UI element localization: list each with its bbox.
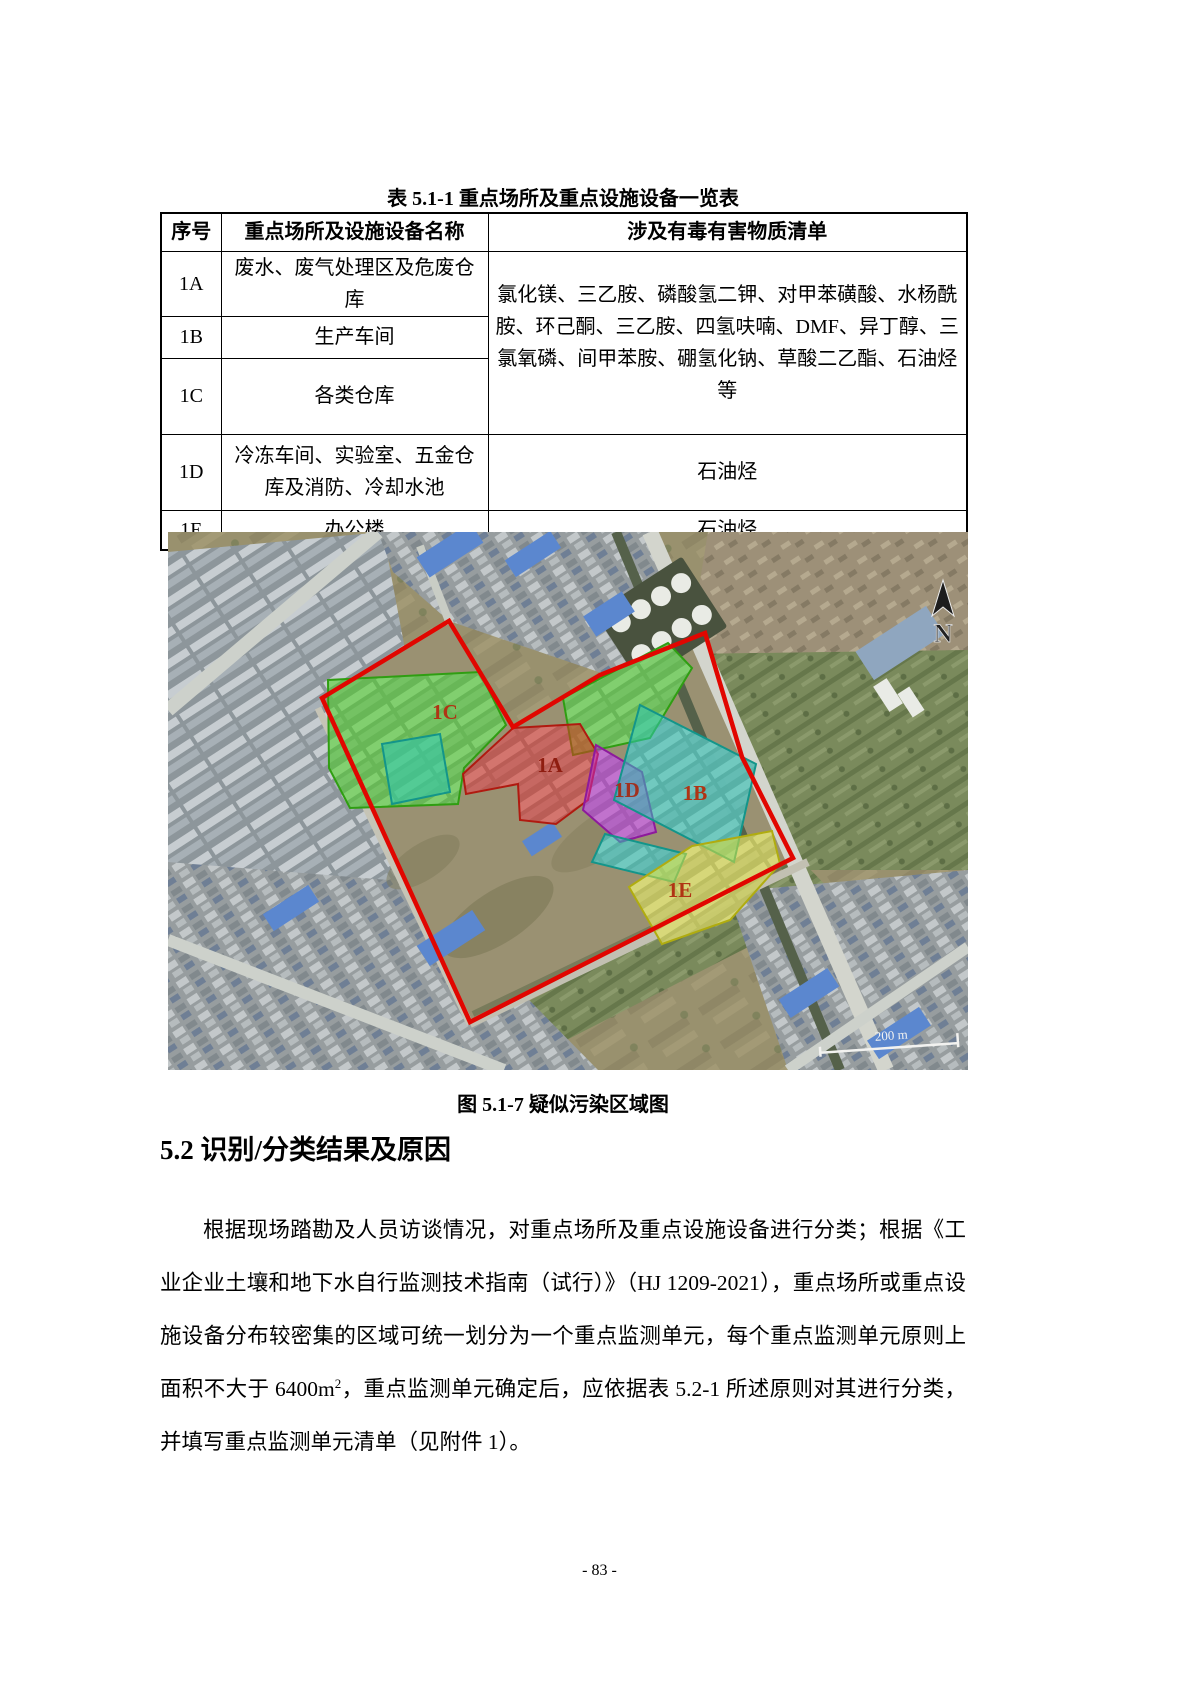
table-header-row: 序号 重点场所及设施设备名称 涉及有毒有害物质清单 <box>161 213 967 251</box>
header-substances: 涉及有毒有害物质清单 <box>488 213 967 251</box>
header-seq: 序号 <box>161 213 221 251</box>
table-row: 1D 冷冻车间、实验室、五金仓库及消防、冷却水池 石油烃 <box>161 434 967 510</box>
cell-name-1d: 冷冻车间、实验室、五金仓库及消防、冷却水池 <box>221 434 488 510</box>
cell-substances-merged: 氯化镁、三乙胺、磷酸氢二钾、对甲苯磺酸、水杨酰胺、环己酮、三乙胺、四氢呋喃、DM… <box>488 251 967 434</box>
site-map-svg: 1C 1A 1D 1B 1E N 200 m <box>168 532 968 1070</box>
zone-label-1a: 1A <box>537 753 564 777</box>
table-title: 表 5.1-1 重点场所及重点设施设备一览表 <box>160 182 966 211</box>
section-heading: 5.2 识别/分类结果及原因 <box>160 1128 966 1167</box>
cell-id-1d: 1D <box>161 434 221 510</box>
zone-1b-small-region <box>382 734 450 804</box>
figure-caption: 图 5.1-7 疑似污染区域图 <box>160 1088 966 1117</box>
north-label: N <box>934 619 953 648</box>
satellite-map-figure: 1C 1A 1D 1B 1E N 200 m <box>168 532 968 1070</box>
cell-name-1a: 废水、废气处理区及危废仓库 <box>221 251 488 316</box>
body-paragraph: 根据现场踏勘及人员访谈情况，对重点场所及重点设施设备进行分类；根据《工业企业土壤… <box>160 1204 966 1469</box>
paragraph-text: 根据现场踏勘及人员访谈情况，对重点场所及重点设施设备进行分类；根据《工业企业土壤… <box>160 1218 966 1401</box>
cell-name-1c: 各类仓库 <box>221 358 488 434</box>
cell-id-1c: 1C <box>161 358 221 434</box>
page-number: - 83 - <box>0 1562 1199 1580</box>
cell-substances-1d: 石油烃 <box>488 434 967 510</box>
cell-id-1b: 1B <box>161 316 221 358</box>
key-facilities-table: 序号 重点场所及设施设备名称 涉及有毒有害物质清单 1A 废水、废气处理区及危废… <box>160 212 968 551</box>
scale-label: 200 m <box>874 1027 908 1044</box>
cell-name-1b: 生产车间 <box>221 316 488 358</box>
zone-label-1c: 1C <box>432 700 458 724</box>
cell-id-1a: 1A <box>161 251 221 316</box>
zone-label-1b: 1B <box>683 781 708 805</box>
zone-label-1e: 1E <box>668 878 693 902</box>
zone-label-1d: 1D <box>614 778 640 802</box>
table-row: 1A 废水、废气处理区及危废仓库 氯化镁、三乙胺、磷酸氢二钾、对甲苯磺酸、水杨酰… <box>161 251 967 316</box>
header-name: 重点场所及设施设备名称 <box>221 213 488 251</box>
